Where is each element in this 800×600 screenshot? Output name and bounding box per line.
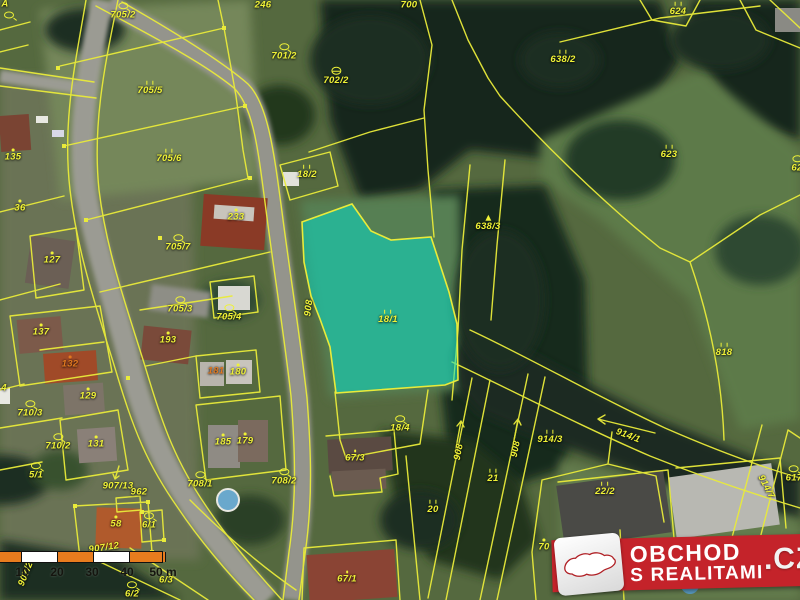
- scale-label: 40: [120, 565, 133, 579]
- logo-line2: S REALITAMI: [630, 563, 764, 586]
- scale-segment: [0, 552, 22, 562]
- czech-map-badge: [553, 532, 624, 596]
- scale-segment: [94, 552, 130, 562]
- scale-label: 10: [15, 565, 28, 579]
- realty-watermark-logo: OBCHOD S REALITAMI .CZ: [551, 534, 800, 592]
- scale-label: 20: [50, 565, 63, 579]
- czech-republic-map-icon: [558, 542, 620, 587]
- scale-segment: [22, 552, 58, 562]
- map-scale-bar: [0, 552, 162, 562]
- scale-segment: [130, 552, 166, 562]
- scale-labels: 1020304050 m: [0, 565, 200, 581]
- scale-label: 30: [85, 565, 98, 579]
- scale-label: 50 m: [149, 565, 176, 579]
- scale-segment: [58, 552, 94, 562]
- parcel-boundaries: [0, 0, 800, 600]
- logo-text: OBCHOD S REALITAMI: [629, 540, 763, 586]
- logo-tld: .CZ: [764, 542, 800, 577]
- cadastral-map[interactable]: A705/2246700624705/5701/2702/2638/2705/6…: [0, 0, 800, 600]
- highlighted-parcel[interactable]: [302, 204, 458, 393]
